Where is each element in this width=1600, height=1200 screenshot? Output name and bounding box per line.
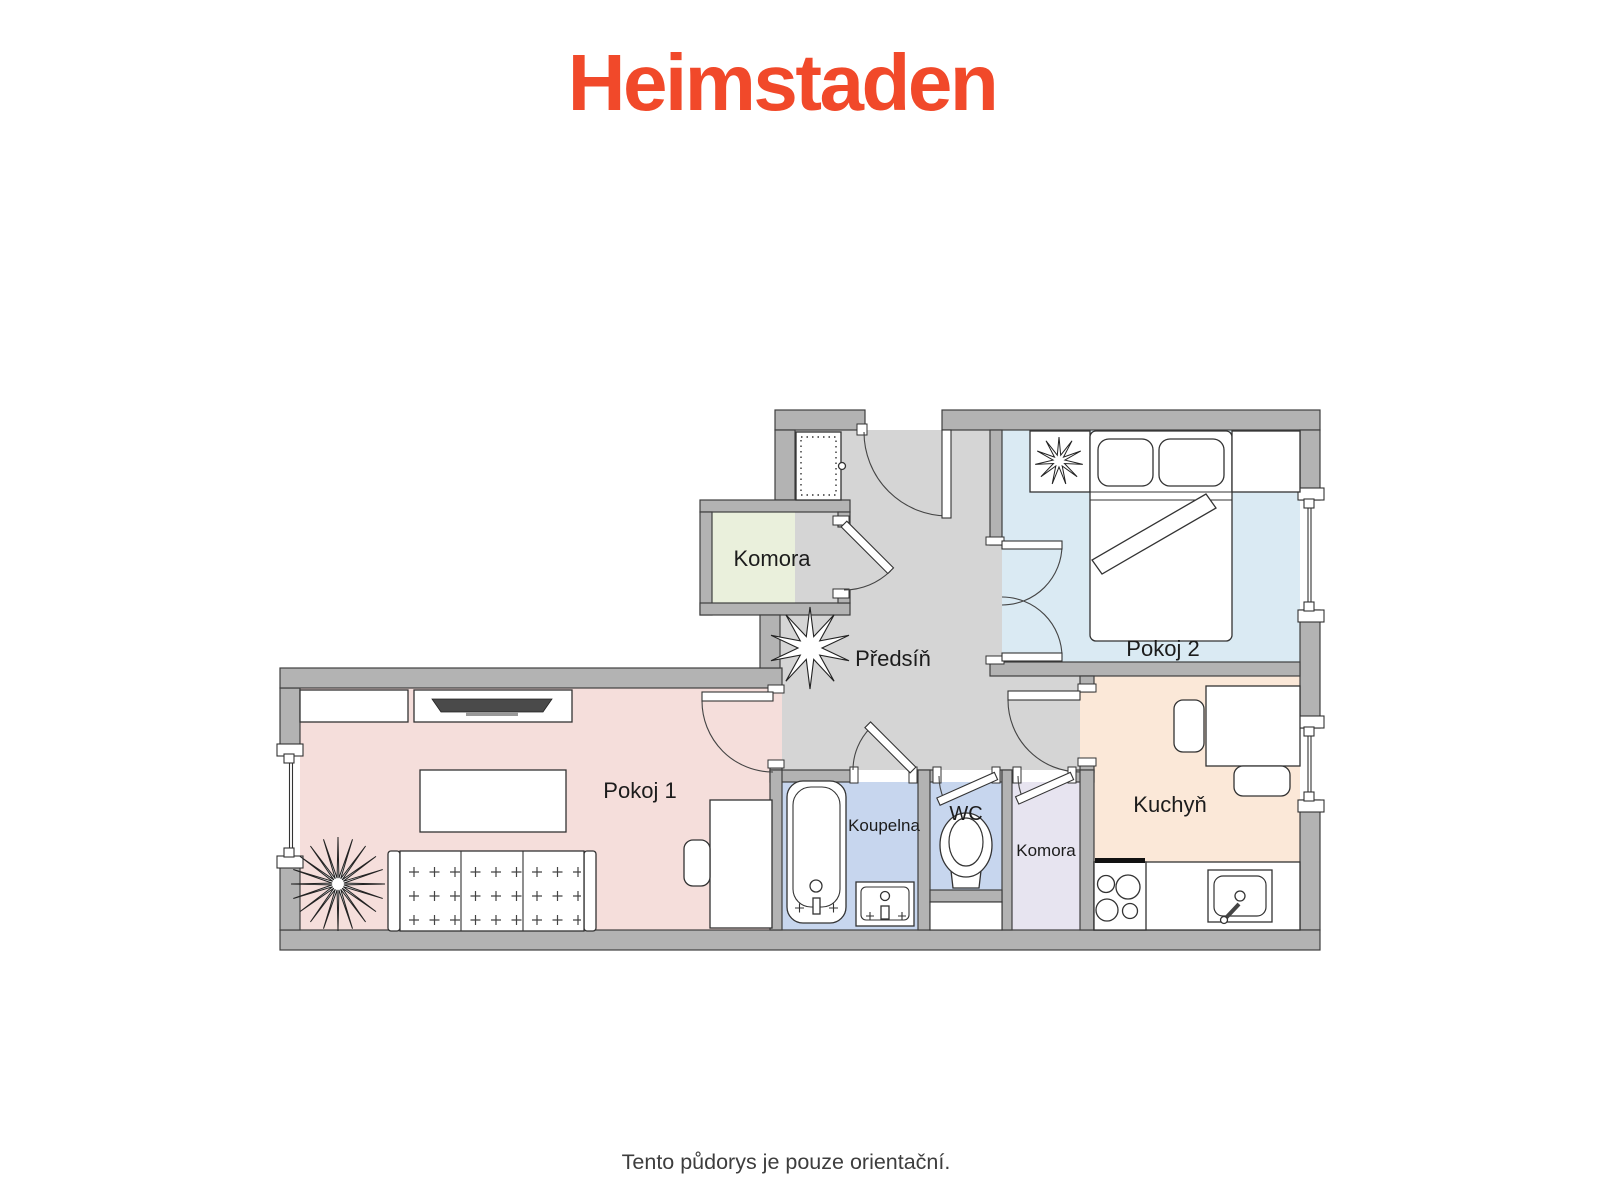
window-kuchyn-icon [1298, 716, 1324, 812]
pillow [1159, 439, 1224, 486]
room-label-kuchyn: Kuchyň [1133, 792, 1206, 817]
washbasin-icon [856, 882, 914, 926]
nightstand [1232, 431, 1300, 492]
wall-shelf [300, 690, 408, 722]
stove-edge [1095, 858, 1145, 863]
sofa [388, 851, 596, 931]
floorplan-image: Heimstaden [0, 0, 1600, 1200]
room-label-predsin: Předsíň [855, 646, 931, 671]
desk [710, 800, 772, 928]
sofa-cushions [403, 857, 581, 927]
plant-table [1030, 431, 1090, 492]
tv-stand [414, 690, 572, 722]
room-label-pokoj-2: Pokoj 2 [1126, 636, 1199, 661]
window-pokoj2-icon [1298, 488, 1324, 622]
kitchen-sink-icon [1208, 870, 1272, 924]
room-label-komora-1: Komora [733, 546, 811, 571]
tv-base [466, 712, 518, 716]
service-niche [930, 902, 1002, 930]
room-floor-predsin [990, 545, 1002, 662]
tv-icon [432, 699, 552, 712]
window-pokoj1-icon [277, 744, 303, 868]
disclaimer-text: Tento půdorys je pouze orientační. [622, 1150, 951, 1174]
dining-table [1206, 686, 1300, 766]
dining-chair [1234, 766, 1290, 796]
stove-icon [1094, 858, 1146, 930]
room-label-pokoj-1: Pokoj 1 [603, 778, 676, 803]
page: Heimstaden [0, 0, 1600, 1200]
room-label-wc: WC [949, 803, 982, 825]
wardrobe [796, 432, 846, 500]
desk-chair [684, 840, 710, 886]
dining-chair [1174, 700, 1204, 752]
bathtub-icon [787, 781, 846, 923]
pillow [1098, 439, 1153, 486]
room-label-komora-2: Komora [1016, 841, 1076, 860]
bed [1090, 431, 1232, 641]
brand-logo: Heimstaden [568, 38, 996, 127]
room-label-koupelna: Koupelna [848, 816, 920, 835]
coffee-table [420, 770, 566, 832]
room-floor-kuchyn [1080, 690, 1094, 763]
